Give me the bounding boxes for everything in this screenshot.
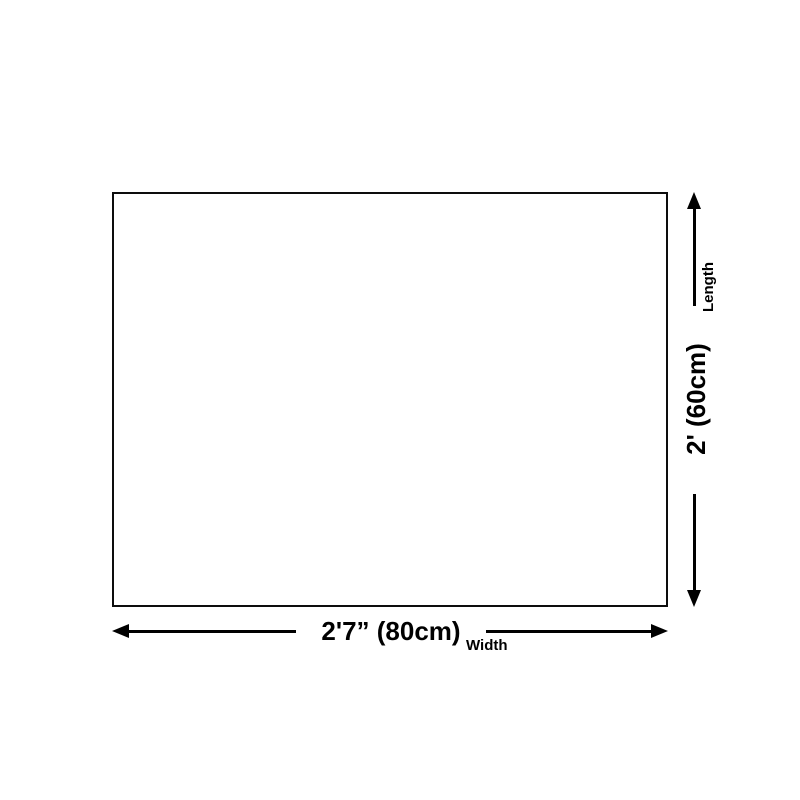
width-label: Width: [466, 637, 508, 654]
length-label: Length: [699, 247, 719, 327]
length-dimension-line-top: [693, 208, 696, 306]
width-dimension-line-left: [126, 630, 296, 633]
product-outline: [112, 192, 668, 607]
width-arrow-right-icon: [651, 624, 668, 638]
length-dimension-line-bottom: [693, 494, 696, 591]
dimension-diagram: 2'7” (80cm) Width Length 2' (60cm): [0, 0, 800, 800]
length-arrow-down-icon: [687, 590, 701, 607]
width-dimension-line-right: [486, 630, 654, 633]
length-arrow-up-icon: [687, 192, 701, 209]
width-value: 2'7” (80cm): [296, 615, 486, 647]
length-value: 2' (60cm): [681, 329, 711, 469]
